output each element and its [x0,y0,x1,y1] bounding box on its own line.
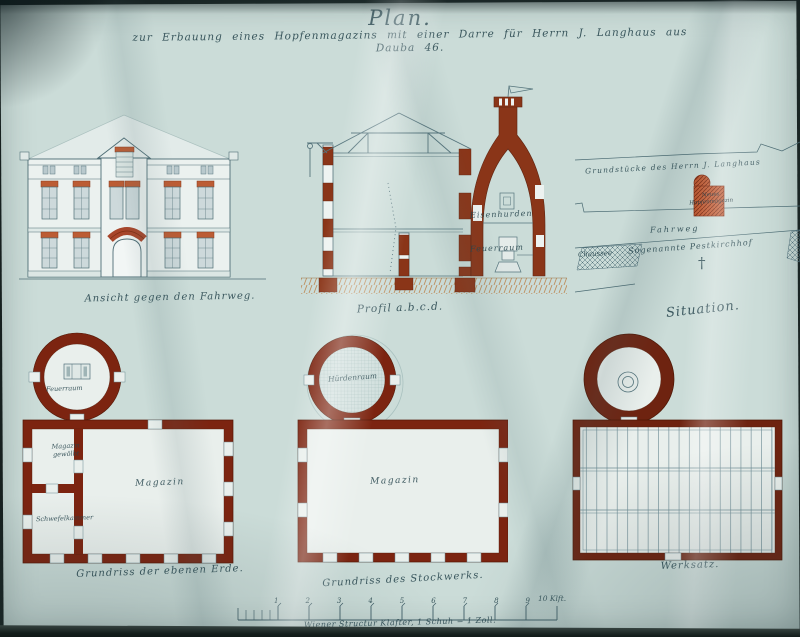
scale-tick-label: 5 [400,597,404,606]
building-footprint [694,175,724,216]
scale-tick-label: 4 [368,597,372,606]
ground-floor-plan [20,330,255,575]
section-drawing [293,85,573,305]
masonry-piers [319,147,475,292]
roof-plan [555,332,795,572]
scale-tick-label: 2 [305,597,309,606]
kiln-ring [29,333,125,426]
boundary-lines [575,142,800,292]
roof-truss [323,113,471,153]
scale-tick-label: 9 [526,597,530,606]
kiln-ring [584,334,674,426]
scale-tick-numbers: 1 2 3 4 5 6 7 8 9 [274,597,530,606]
scale-tick-label: 7 [463,597,467,606]
hatched-strips [577,230,800,270]
site-plan-drawing [575,140,800,330]
scale-tick-label: 3 [337,597,341,606]
kiln-section [471,86,545,276]
scale-tick-label: 6 [431,597,435,606]
hurdle-ring [304,335,403,431]
scale-tick-label: 1 [274,597,278,606]
elevation-drawing [15,95,270,295]
upper-floor-plan [283,333,508,568]
scale-tick-label: 8 [494,597,498,606]
photographed-plan-sheet: Plan. zur Erbauung eines Hopfenmagazins … [0,0,800,637]
building-section [323,145,465,276]
main-walls [298,420,508,562]
ground-hatch [301,278,567,294]
main-walls [573,420,782,560]
